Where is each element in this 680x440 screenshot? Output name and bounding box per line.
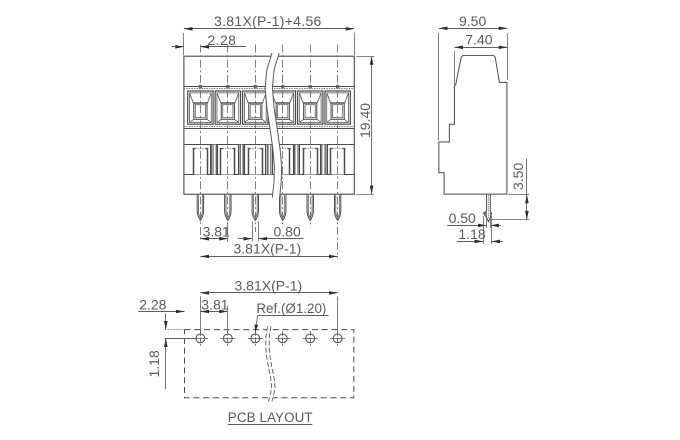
svg-text:19.40: 19.40 — [357, 103, 373, 138]
svg-text:0.50: 0.50 — [449, 210, 476, 226]
svg-text:1.18: 1.18 — [458, 226, 485, 242]
svg-text:1.18: 1.18 — [146, 350, 162, 377]
svg-text:0.80: 0.80 — [274, 224, 301, 240]
svg-text:3.81: 3.81 — [203, 224, 230, 240]
svg-text:3.50: 3.50 — [510, 163, 526, 190]
svg-text:3.81X(P-1)+4.56: 3.81X(P-1)+4.56 — [214, 13, 322, 29]
svg-text:PCB LAYOUT: PCB LAYOUT — [228, 410, 313, 425]
svg-text:3.81X(P-1): 3.81X(P-1) — [235, 277, 303, 293]
svg-text:2.28: 2.28 — [139, 296, 166, 312]
svg-text:2.28: 2.28 — [208, 32, 237, 48]
svg-text:3.81X(P-1): 3.81X(P-1) — [234, 240, 302, 256]
svg-text:3.81: 3.81 — [201, 296, 228, 312]
svg-text:7.40: 7.40 — [465, 32, 492, 48]
svg-text:Ref.(Ø1.20): Ref.(Ø1.20) — [256, 301, 326, 316]
svg-text:9.50: 9.50 — [459, 13, 486, 29]
